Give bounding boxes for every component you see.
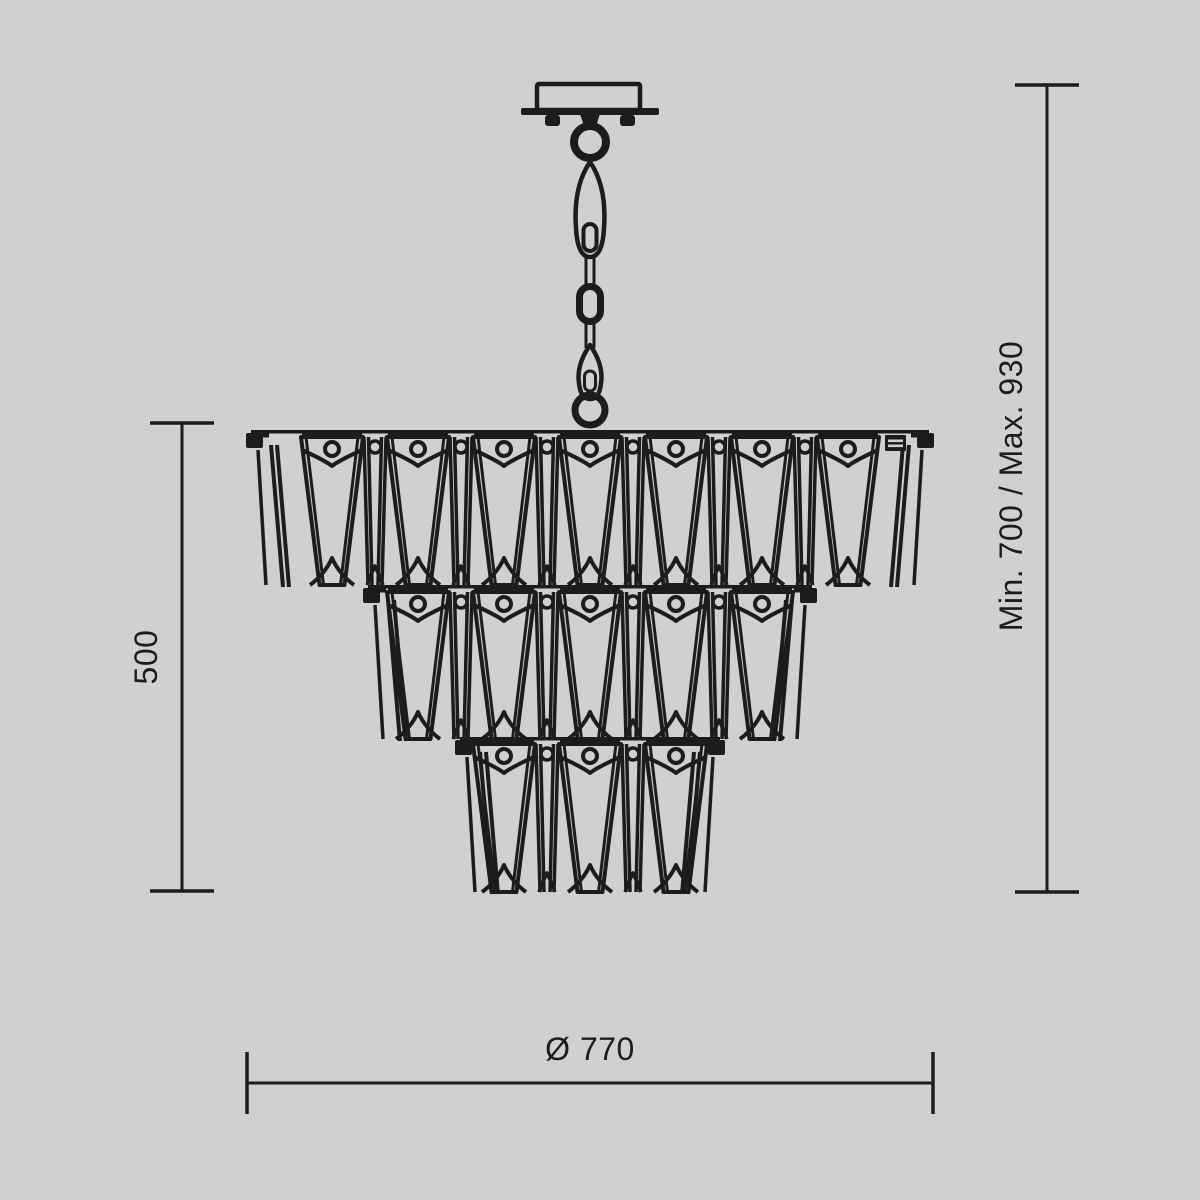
- edge-clamp: [708, 740, 725, 755]
- diameter-label: Ø 770: [545, 1031, 635, 1067]
- body-height-label: 500: [128, 630, 164, 685]
- diagram-canvas: 500 Min. 700 / Max. 930 Ø 770: [0, 0, 1200, 1200]
- adjuster-notch: [888, 440, 903, 443]
- edge-clamp: [246, 433, 263, 448]
- plate-foot: [620, 115, 635, 126]
- plate-foot: [545, 115, 560, 126]
- edge-clamp: [455, 740, 472, 755]
- adjuster-notch: [888, 445, 903, 448]
- edge-clamp: [800, 588, 817, 603]
- ceiling-plate: [521, 108, 659, 115]
- edge-clamp: [363, 588, 380, 603]
- edge-clamp: [917, 433, 934, 448]
- overall-height-label: Min. 700 / Max. 930: [993, 341, 1029, 632]
- chandelier-technical-drawing: 500 Min. 700 / Max. 930 Ø 770: [0, 0, 1200, 1200]
- height-adjuster: [885, 435, 906, 451]
